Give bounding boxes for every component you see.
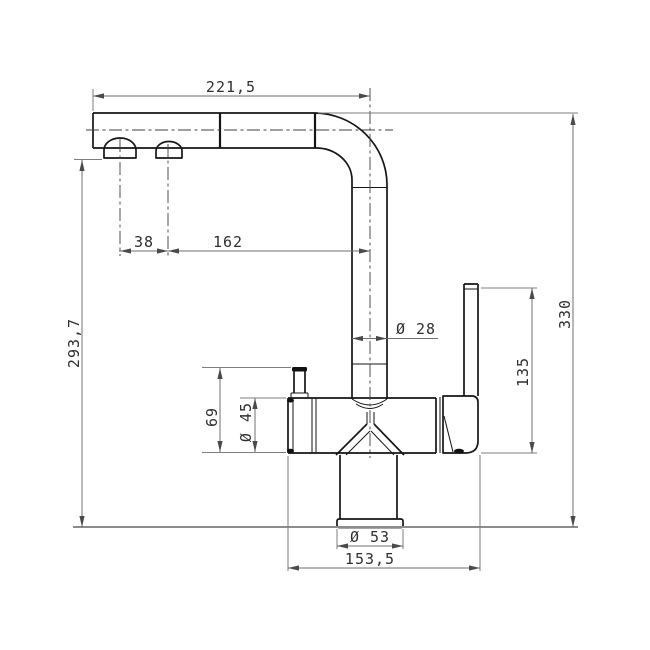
dimension-base-diameter: Ø 53: [337, 528, 403, 549]
dimension-overall-height: 330: [318, 113, 578, 527]
dim-label-aerator-to-axis: 162: [213, 233, 243, 251]
dim-label-body-diameter: Ø 45: [237, 402, 255, 442]
dim-label-spout-reach: 221,5: [206, 78, 256, 96]
dimension-outlet-height: 293,7: [65, 160, 102, 528]
lever-handle: [440, 284, 478, 453]
dim-label-base-diameter: Ø 53: [350, 528, 390, 546]
drawing-page: 221,5 38 162 293,7 330 Ø 28: [0, 0, 650, 650]
dim-label-overall-height: 330: [556, 299, 574, 329]
dim-label-outlet-height: 293,7: [65, 318, 83, 368]
faucet-outline: [73, 113, 578, 528]
faucet-dimension-drawing: 221,5 38 162 293,7 330 Ø 28: [0, 0, 650, 650]
dimension-handle-height: 135: [481, 288, 537, 453]
dimension-riser-diameter: Ø 28: [352, 320, 438, 341]
filter-knob: [291, 367, 308, 398]
spout: [93, 113, 387, 184]
dim-label-overall-depth: 153,5: [345, 550, 395, 568]
dim-label-aerator-offset: 38: [134, 233, 154, 251]
faucet-body: [287, 398, 436, 453]
riser-pipe: [352, 180, 387, 409]
dimension-spout-reach: 221,5: [93, 78, 370, 111]
base-column: [337, 455, 403, 528]
dimension-body-diameter: Ø 45: [237, 398, 286, 452]
dim-label-body-top-height: 69: [203, 407, 221, 427]
dim-label-riser-diameter: Ø 28: [396, 320, 436, 338]
dim-label-handle-height: 135: [514, 357, 532, 387]
dimension-overall-depth: 153,5: [288, 455, 480, 571]
dimension-aerator-offsets: 38 162: [119, 233, 370, 254]
